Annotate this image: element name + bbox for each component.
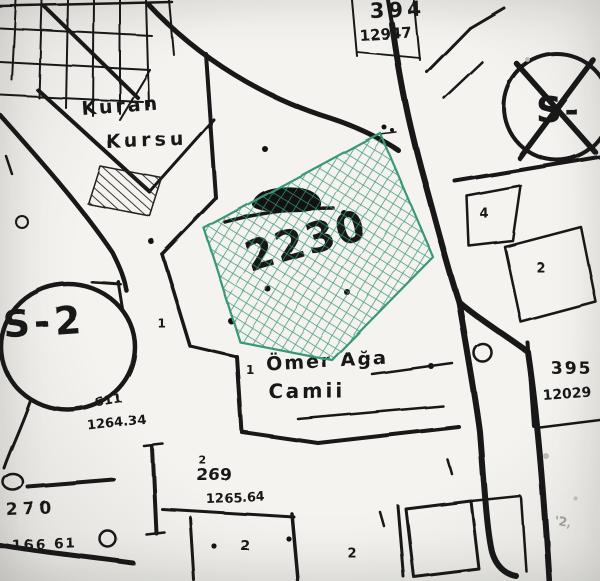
- parcel-394-number: 394: [369, 0, 426, 23]
- zone-right-label: S-: [536, 90, 581, 131]
- lot-number-2c: 2: [347, 546, 356, 561]
- mosque-label-line2: Camii: [268, 379, 346, 403]
- lot-number-4: 4: [480, 207, 489, 222]
- parcel-394-area: 12947: [359, 23, 412, 45]
- parcel-611-area: 1264.34: [87, 413, 147, 434]
- lot-number-1: 1: [246, 363, 254, 377]
- lot-number-2: 2: [536, 261, 545, 276]
- faint-lot-mark: '2,: [553, 513, 572, 530]
- parcel-270-number: 270: [5, 498, 56, 520]
- parcel-270-area: 166 61: [12, 536, 78, 554]
- lot-number-1b: 1: [157, 316, 165, 330]
- kuran-kursu-label-line2: Kursu: [105, 128, 188, 153]
- kuran-kursu-label-line1: Kuran: [81, 93, 161, 120]
- bottom-blocks: [0, 444, 526, 580]
- zone-circle-left: [0, 115, 135, 468]
- parcel-395-area: 12029: [542, 385, 592, 404]
- parcel-395-number: 395: [551, 359, 593, 379]
- highlight-crosshatch-region: [204, 133, 433, 360]
- parcel-269-number: 269: [196, 465, 232, 485]
- parcel-611-number: 611: [94, 391, 123, 410]
- road-network: [388, 0, 549, 580]
- cadastral-map-scan: 394 12947 Kuran Kursu S- S-2 2230 Ömer A…: [0, 0, 600, 581]
- parcel-269-area: 1265.64: [206, 490, 266, 507]
- lot-number-2b: 2: [240, 538, 250, 554]
- striped-wedge: [88, 166, 162, 216]
- zone-left-label: S-2: [2, 297, 86, 347]
